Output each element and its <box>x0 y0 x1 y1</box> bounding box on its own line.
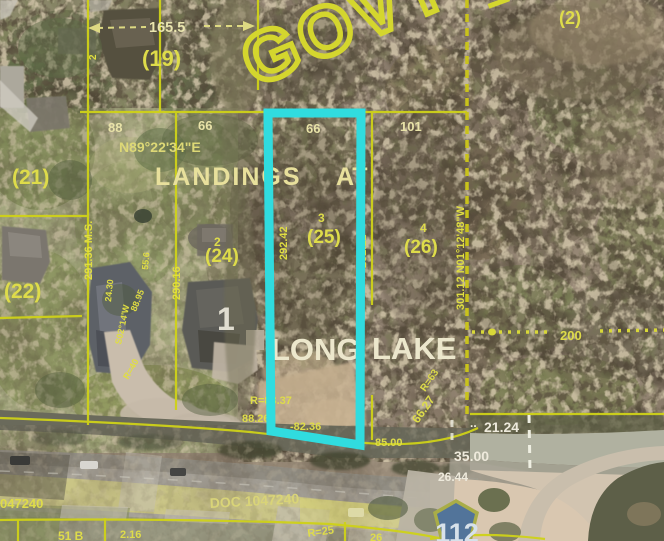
svg-text:047240: 047240 <box>0 496 43 511</box>
svg-text:292.42: 292.42 <box>278 226 290 260</box>
svg-text:LONG: LONG <box>271 332 361 367</box>
svg-text:(2): (2) <box>559 8 581 28</box>
svg-text:2.16: 2.16 <box>120 529 141 541</box>
svg-text:88: 88 <box>108 120 122 135</box>
svg-text:112: 112 <box>435 518 479 541</box>
svg-text:(24): (24) <box>205 246 239 267</box>
svg-text:21.24: 21.24 <box>484 419 519 435</box>
svg-text:35.00: 35.00 <box>454 448 489 464</box>
svg-text:55.6: 55.6 <box>140 252 151 270</box>
svg-text:(21): (21) <box>12 166 49 189</box>
svg-text:291.36 M.S.: 291.36 M.S. <box>83 221 95 280</box>
svg-text:26: 26 <box>370 532 382 541</box>
svg-text:1: 1 <box>217 301 235 337</box>
svg-text:3: 3 <box>318 211 325 225</box>
svg-text:301.12 N01°12'48"W: 301.12 N01°12'48"W <box>455 205 467 310</box>
svg-text:66: 66 <box>306 121 320 136</box>
svg-text:101: 101 <box>400 119 422 134</box>
svg-text:..: .. <box>470 416 477 430</box>
svg-text:(19): (19) <box>142 46 181 71</box>
svg-text:66: 66 <box>198 118 212 133</box>
svg-text:(22): (22) <box>4 280 41 303</box>
svg-text:N89°22'34"E: N89°22'34"E <box>119 139 201 155</box>
svg-text:290.16: 290.16 <box>171 266 183 300</box>
svg-text:(26): (26) <box>404 237 438 258</box>
svg-text:LANDINGS: LANDINGS <box>155 163 302 191</box>
svg-text:51 B: 51 B <box>58 529 84 541</box>
svg-text:2: 2 <box>88 54 99 60</box>
svg-text:LAKE: LAKE <box>372 331 456 366</box>
svg-text:85.00: 85.00 <box>375 437 403 449</box>
svg-text:26.44: 26.44 <box>438 470 468 484</box>
svg-text:2: 2 <box>214 235 221 249</box>
svg-text:165.5: 165.5 <box>149 20 185 36</box>
svg-text:88.26: 88.26 <box>242 413 270 425</box>
svg-text:4: 4 <box>420 221 427 235</box>
svg-text:200: 200 <box>560 328 582 343</box>
svg-text:(25): (25) <box>307 227 341 248</box>
